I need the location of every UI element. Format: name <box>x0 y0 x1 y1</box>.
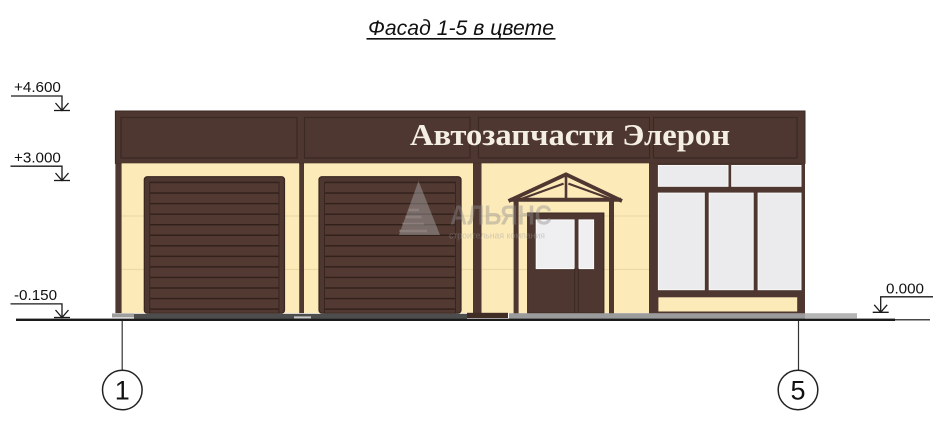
svg-text:+4.600: +4.600 <box>14 79 61 96</box>
svg-text:1: 1 <box>115 376 130 406</box>
svg-text:+3.000: +3.000 <box>14 150 61 167</box>
svg-text:Фасад 1-5 в цвете: Фасад 1-5 в цвете <box>368 16 554 40</box>
svg-text:Автозапчасти Элерон: Автозапчасти Элерон <box>410 118 730 152</box>
svg-text:0.000: 0.000 <box>886 281 924 298</box>
svg-text:-0.150: -0.150 <box>14 287 57 304</box>
svg-text:5: 5 <box>790 376 805 406</box>
svg-text:строительная компания: строительная компания <box>449 231 545 241</box>
svg-text:АЛЬЯНС: АЛЬЯНС <box>450 200 552 231</box>
